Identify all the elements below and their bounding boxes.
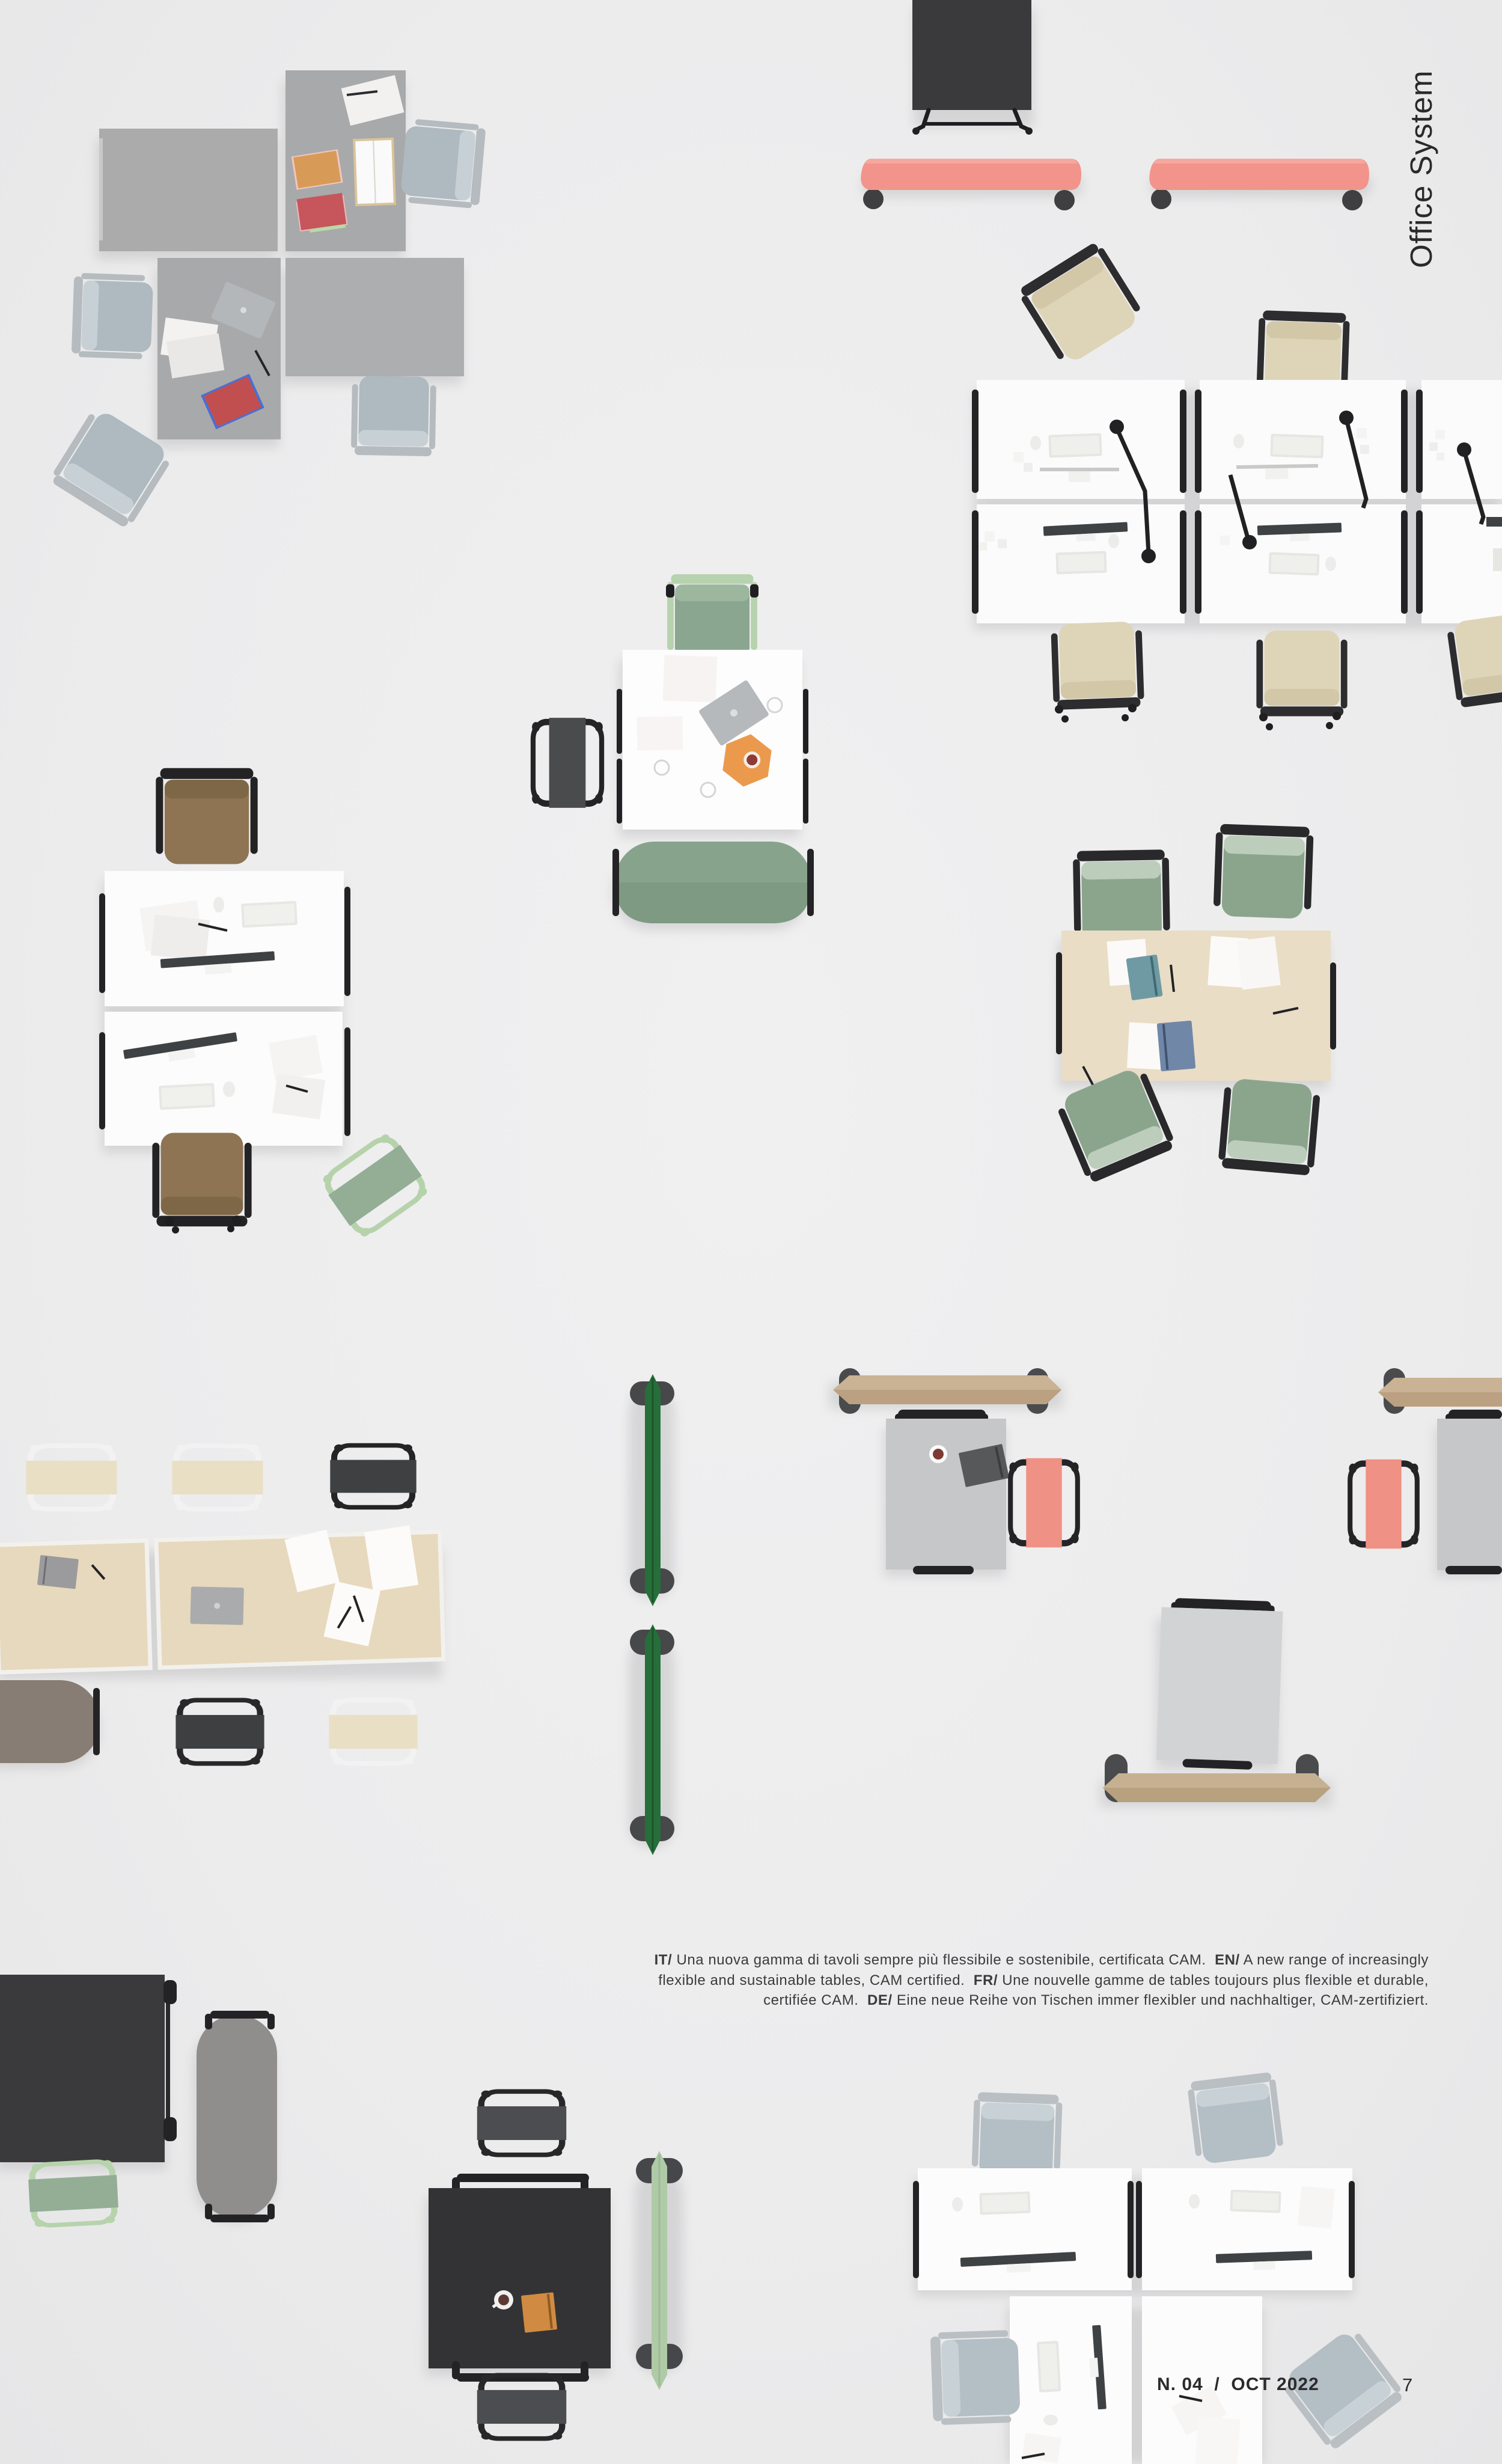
svg-text:Office System: Office System [1404,70,1438,268]
